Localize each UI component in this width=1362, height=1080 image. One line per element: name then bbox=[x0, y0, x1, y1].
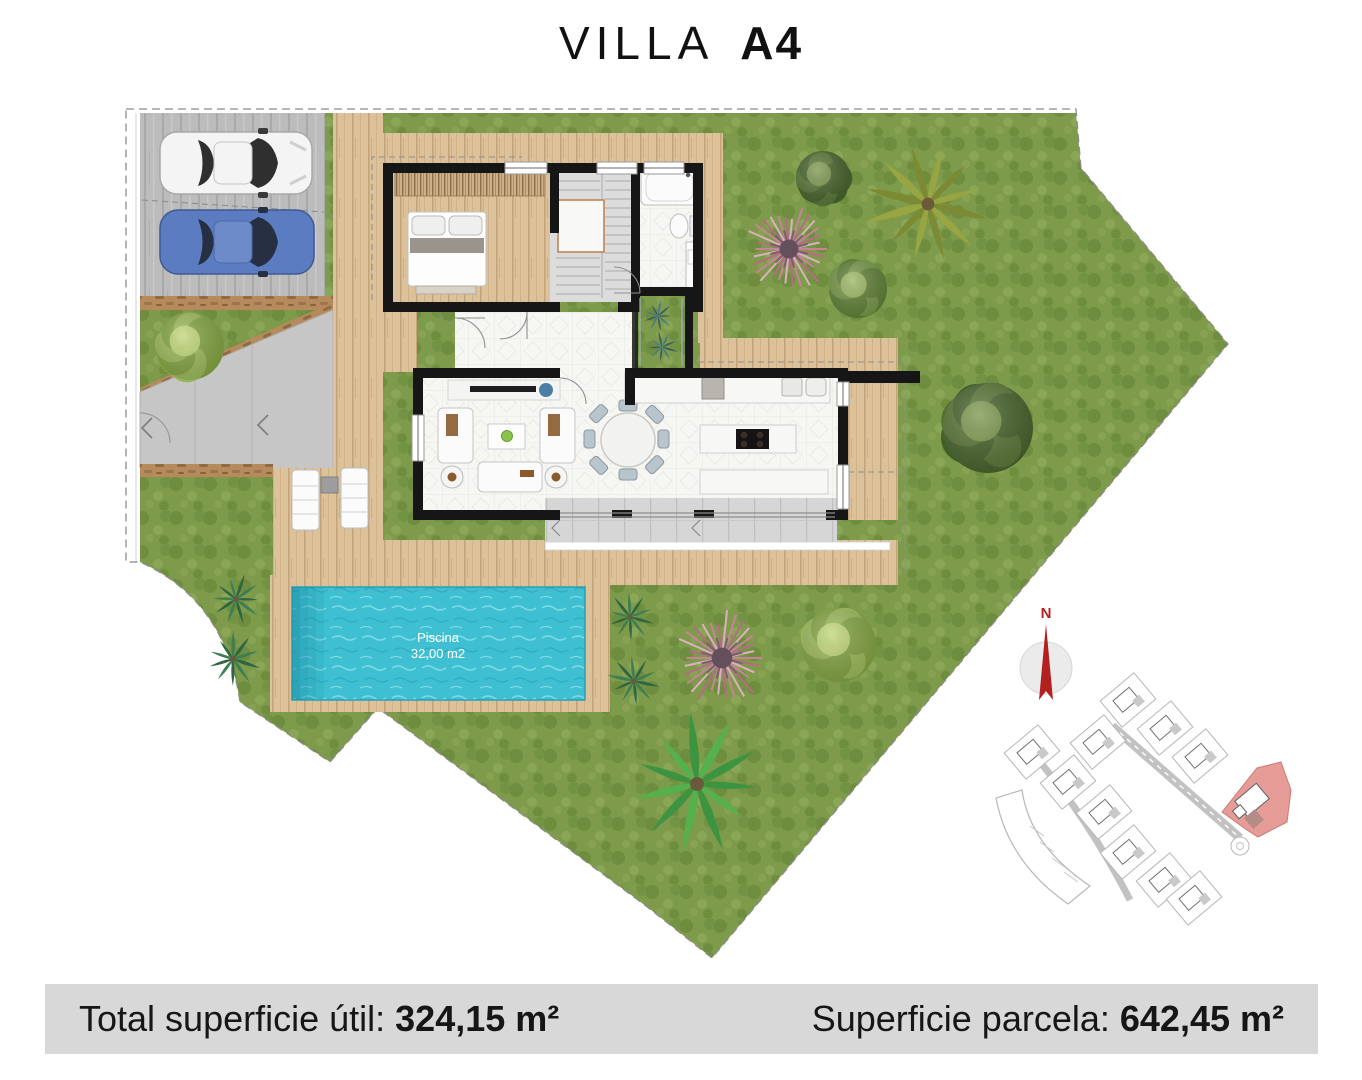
plot-area: Superficie parcela: 642,45 m² bbox=[812, 998, 1284, 1040]
toilet bbox=[670, 214, 688, 238]
title-villa: VILLA bbox=[559, 17, 714, 69]
bed bbox=[408, 212, 486, 294]
compass-north-label: N bbox=[1041, 605, 1052, 622]
living-furniture bbox=[438, 380, 575, 492]
tv bbox=[470, 386, 536, 392]
map-plot bbox=[1100, 673, 1156, 727]
site-plan: Piscina 32,00 m2 bbox=[0, 0, 1362, 1080]
kitchen-sink bbox=[782, 378, 802, 396]
site-location-map bbox=[996, 673, 1291, 925]
plot-area-label: Superficie parcela: bbox=[812, 998, 1120, 1039]
plot-area-value: 642,45 m² bbox=[1120, 998, 1284, 1039]
wood-border-horizontal bbox=[140, 296, 333, 310]
pool-steps bbox=[292, 587, 300, 700]
side-table bbox=[321, 477, 338, 493]
pool-label-name: Piscina bbox=[417, 630, 460, 645]
map-plot bbox=[1100, 825, 1156, 879]
hall-floor bbox=[455, 312, 635, 370]
villa-plan-page: Piscina 32,00 m2 bbox=[0, 0, 1362, 1080]
map-roundabout bbox=[1231, 837, 1249, 855]
speaker bbox=[539, 383, 553, 397]
terrace bbox=[545, 498, 837, 544]
car-blue bbox=[160, 207, 314, 277]
title-code: A4 bbox=[740, 17, 803, 69]
footer-bar: Total superficie útil: 324,15 m² Superfi… bbox=[45, 984, 1318, 1054]
pool-label-area: 32,00 m2 bbox=[411, 646, 465, 661]
cooktop bbox=[736, 429, 769, 449]
compass: N bbox=[1020, 605, 1072, 700]
wood-border-lower bbox=[140, 464, 273, 477]
pool: Piscina 32,00 m2 bbox=[292, 587, 585, 700]
map-plot bbox=[1076, 785, 1132, 839]
useful-area-label: Total superficie útil: bbox=[79, 998, 395, 1039]
stair-landing bbox=[558, 200, 604, 252]
page-title: VILLAA4 bbox=[0, 16, 1362, 70]
useful-area-value: 324,15 m² bbox=[395, 998, 559, 1039]
total-useful-area: Total superficie útil: 324,15 m² bbox=[79, 998, 559, 1040]
car-white bbox=[160, 128, 312, 198]
